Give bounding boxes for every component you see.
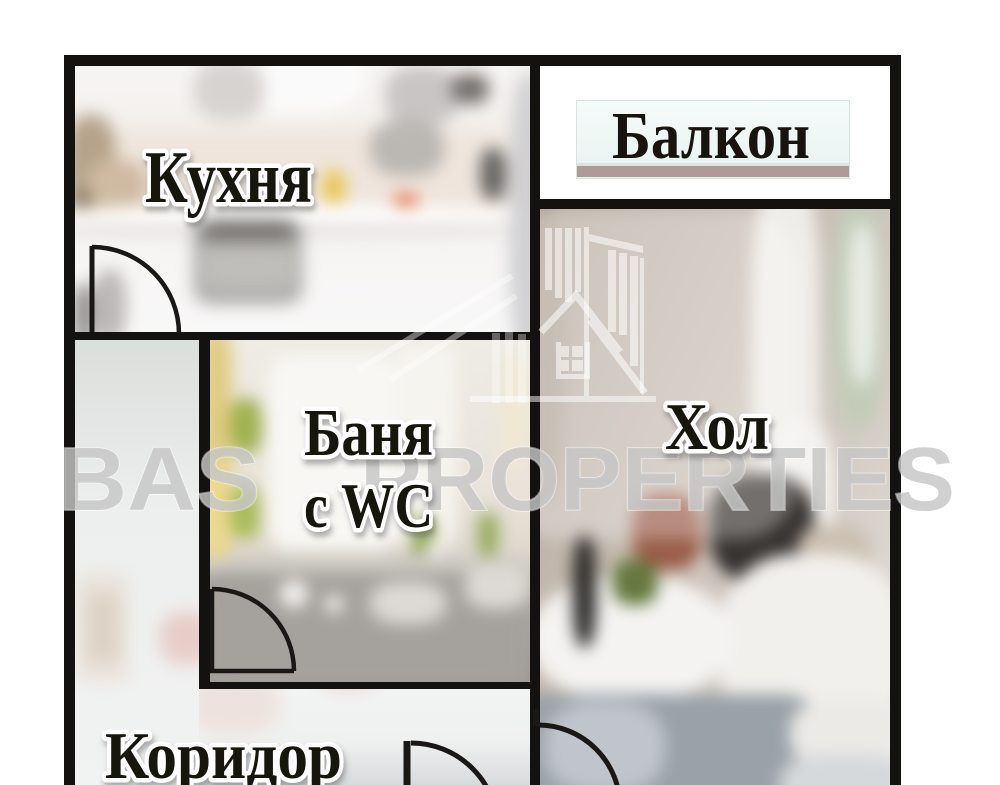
- svg-text:Баня: Баня: [304, 396, 433, 470]
- svg-text:Кухня: Кухня: [145, 137, 312, 219]
- svg-text:Хол: Хол: [665, 390, 769, 464]
- svg-text:с WC: с WC: [304, 470, 433, 541]
- svg-text:Балкон: Балкон: [612, 99, 810, 173]
- svg-text:Коридор: Коридор: [105, 719, 342, 785]
